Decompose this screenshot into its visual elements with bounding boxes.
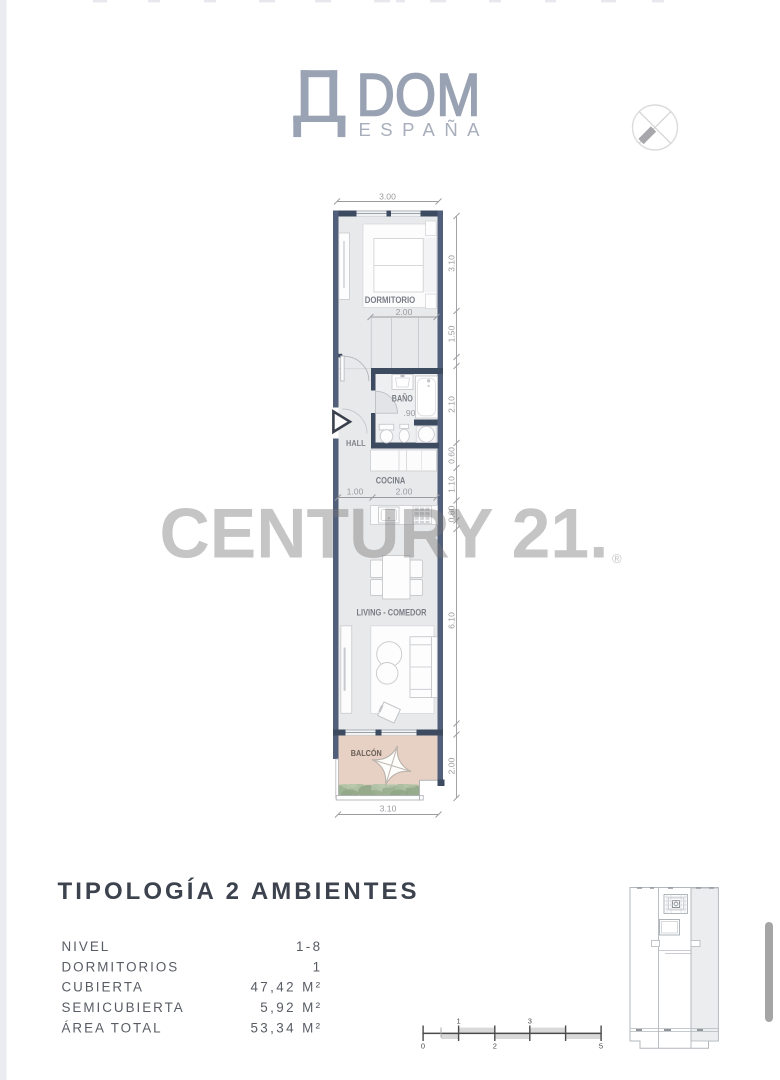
svg-text:53,34 M²: 53,34 M² xyxy=(250,1021,322,1036)
svg-text:.90: .90 xyxy=(404,408,416,418)
svg-text:2.00: 2.00 xyxy=(396,307,413,317)
svg-text:CENTURY 21.: CENTURY 21. xyxy=(160,494,609,573)
svg-text:CUBIERTA: CUBIERTA xyxy=(62,980,144,995)
svg-text:DORMITORIOS: DORMITORIOS xyxy=(62,960,180,975)
svg-text:LIVING - COMEDOR: LIVING - COMEDOR xyxy=(357,608,427,618)
svg-text:COCINA: COCINA xyxy=(376,476,406,486)
svg-text:3.10: 3.10 xyxy=(447,255,457,272)
svg-text:2.00: 2.00 xyxy=(447,757,457,774)
svg-text:2: 2 xyxy=(493,1042,497,1051)
svg-text:HALL: HALL xyxy=(346,438,366,448)
svg-text:1: 1 xyxy=(313,960,323,975)
svg-text:0.60: 0.60 xyxy=(447,447,457,464)
svg-text:6.10: 6.10 xyxy=(447,612,457,629)
svg-text:®: ® xyxy=(612,551,622,566)
svg-text:1.10: 1.10 xyxy=(447,476,457,493)
svg-text:DORMITORIO: DORMITORIO xyxy=(365,295,416,305)
svg-text:ÁREA TOTAL: ÁREA TOTAL xyxy=(62,1021,163,1036)
svg-text:1.50: 1.50 xyxy=(447,325,457,342)
svg-text:1: 1 xyxy=(457,1017,461,1026)
svg-text:DOM: DOM xyxy=(357,62,481,129)
svg-text:0: 0 xyxy=(421,1042,425,1051)
svg-text:3.10: 3.10 xyxy=(380,803,397,813)
svg-text:3.00: 3.00 xyxy=(379,191,396,201)
svg-text:2.10: 2.10 xyxy=(447,396,457,413)
svg-text:BAÑO: BAÑO xyxy=(392,394,413,404)
svg-text:5,92 M²: 5,92 M² xyxy=(260,1000,322,1015)
svg-text:5: 5 xyxy=(599,1042,603,1051)
svg-text:47,42 M²: 47,42 M² xyxy=(250,980,322,995)
svg-text:3: 3 xyxy=(528,1017,532,1026)
svg-text:NIVEL: NIVEL xyxy=(62,939,111,954)
svg-text:SEMICUBIERTA: SEMICUBIERTA xyxy=(62,1000,185,1015)
svg-text:1-8: 1-8 xyxy=(296,939,323,954)
svg-text:BALCÓN: BALCÓN xyxy=(351,747,382,758)
